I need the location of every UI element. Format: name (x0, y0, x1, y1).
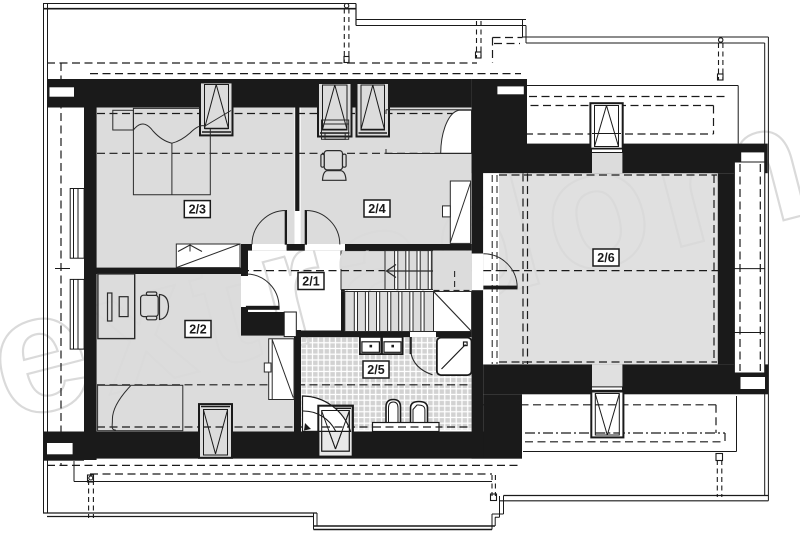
svg-text:2/6: 2/6 (597, 251, 614, 265)
svg-text:2/5: 2/5 (367, 363, 384, 377)
svg-text:2/2: 2/2 (189, 323, 206, 337)
svg-text:2/3: 2/3 (189, 203, 206, 217)
svg-text:2/4: 2/4 (368, 202, 385, 216)
svg-text:2/1: 2/1 (302, 275, 319, 289)
